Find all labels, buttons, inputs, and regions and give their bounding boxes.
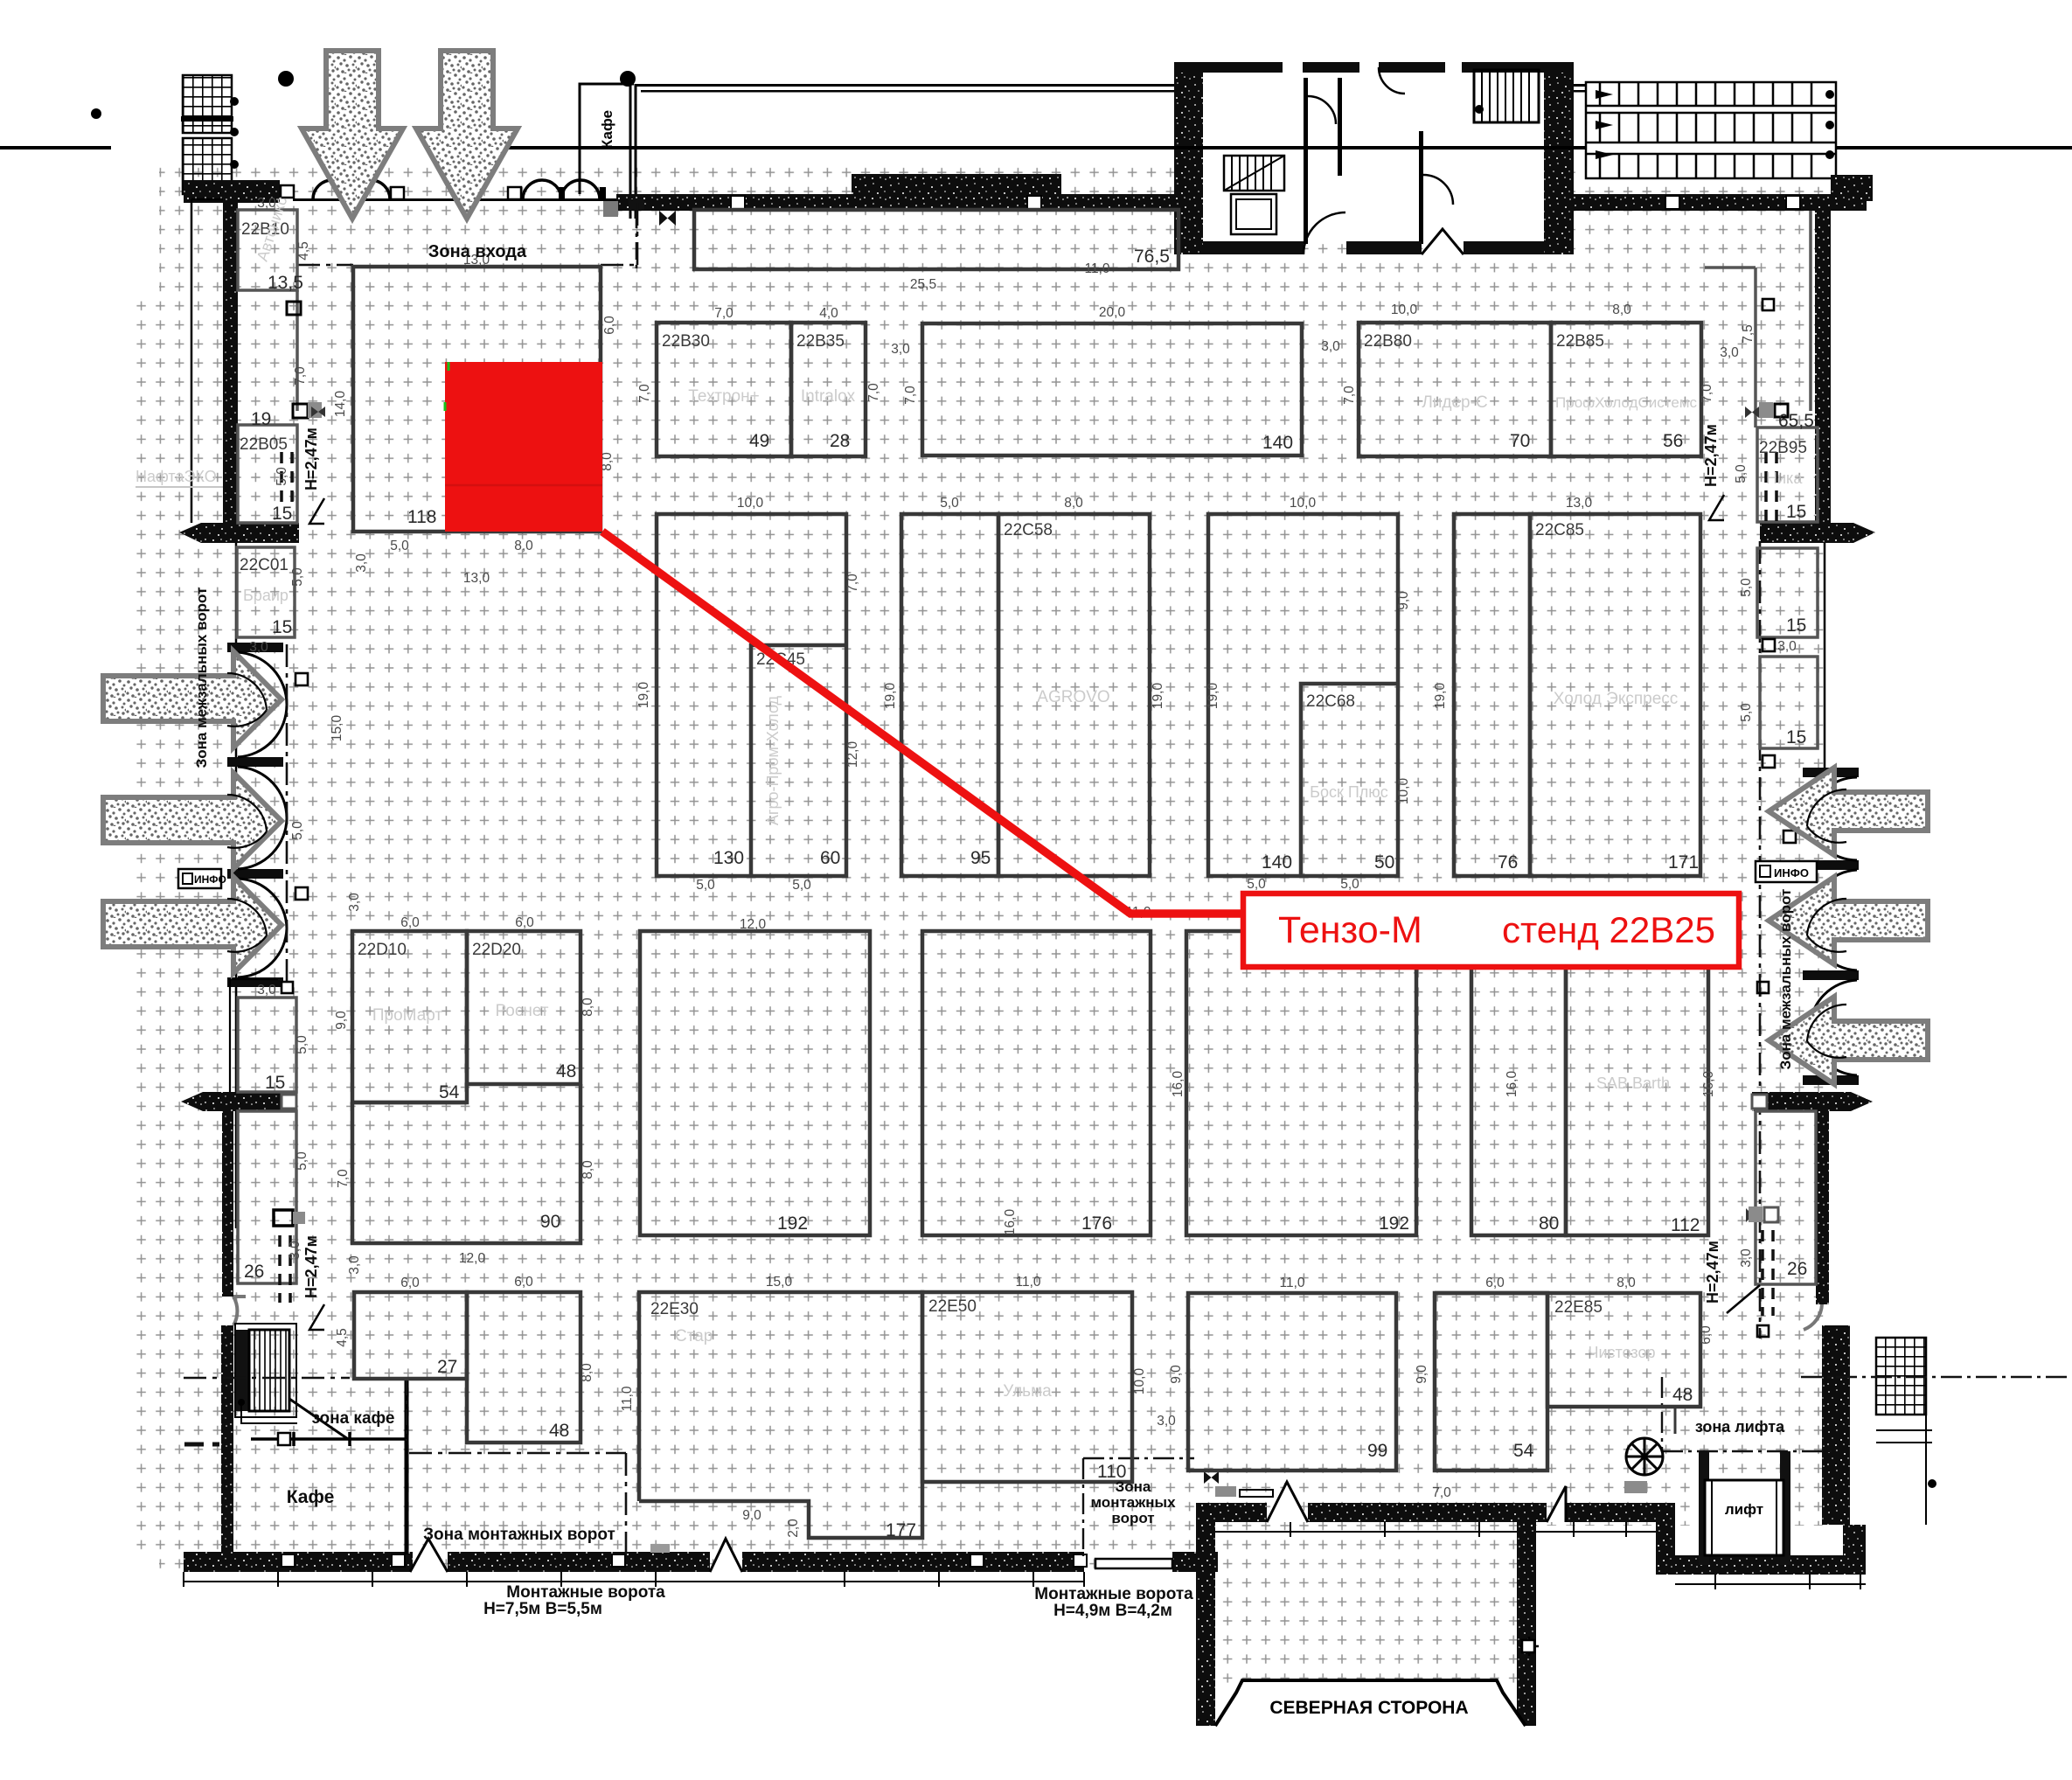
svg-text:4,5: 4,5 [335, 1328, 350, 1347]
svg-text:5,0: 5,0 [290, 567, 305, 587]
svg-text:8,0: 8,0 [1617, 1276, 1636, 1290]
svg-text:56: 56 [1663, 431, 1683, 451]
svg-text:3,0: 3,0 [1739, 1248, 1754, 1268]
svg-text:Зона межзальных ворот: Зона межзальных ворот [193, 588, 210, 768]
svg-text:8,0: 8,0 [580, 1363, 594, 1382]
svg-text:Intralox: Intralox [801, 387, 856, 406]
svg-text:9,0: 9,0 [1415, 1365, 1429, 1384]
svg-text:19: 19 [251, 409, 271, 429]
svg-text:7,0: 7,0 [637, 384, 652, 403]
svg-text:19,0: 19,0 [1433, 683, 1448, 710]
svg-text:14,0: 14,0 [333, 391, 348, 418]
svg-text:SAB Barth: SAB Barth [1596, 1074, 1670, 1092]
svg-text:Техтрон+: Техтрон+ [688, 387, 759, 406]
svg-text:зона кафе: зона кафе [312, 1409, 395, 1428]
svg-text:22B80: 22B80 [1364, 332, 1412, 351]
svg-text:130: 130 [713, 848, 744, 868]
svg-text:9,0: 9,0 [1169, 1365, 1184, 1384]
svg-text:99: 99 [1367, 1441, 1387, 1461]
svg-text:8,0: 8,0 [581, 998, 595, 1017]
svg-text:3,0: 3,0 [249, 640, 268, 655]
svg-text:Роснет: Роснет [495, 1002, 548, 1020]
svg-text:50: 50 [1374, 852, 1394, 873]
svg-text:176: 176 [1081, 1213, 1112, 1234]
svg-text:19,0: 19,0 [1206, 683, 1220, 710]
svg-text:25,5: 25,5 [910, 277, 936, 292]
svg-text:12,0: 12,0 [459, 1251, 486, 1266]
svg-text:12,0: 12,0 [845, 741, 860, 768]
svg-text:48: 48 [1672, 1385, 1693, 1405]
svg-text:22D20: 22D20 [472, 941, 521, 959]
svg-text:60: 60 [820, 848, 840, 868]
svg-text:3,0: 3,0 [257, 196, 276, 211]
svg-text:стенд 22В25: стенд 22В25 [1502, 909, 1715, 950]
svg-text:Тензо-М: Тензо-М [1278, 909, 1422, 951]
svg-text:5,0: 5,0 [1247, 877, 1266, 892]
svg-text:177: 177 [886, 1520, 916, 1540]
svg-text:5,0: 5,0 [275, 467, 289, 486]
svg-text:15: 15 [1786, 615, 1806, 636]
svg-text:3,0: 3,0 [354, 553, 369, 573]
svg-text:15: 15 [272, 504, 292, 524]
svg-text:3,0: 3,0 [891, 342, 910, 357]
svg-text:171: 171 [1668, 852, 1699, 873]
svg-text:ПроМарт: ПроМарт [372, 1006, 443, 1025]
svg-text:22C68: 22C68 [1306, 692, 1355, 711]
svg-text:6,0: 6,0 [602, 316, 617, 335]
svg-text:19,0: 19,0 [883, 683, 898, 710]
svg-text:8,0: 8,0 [1064, 496, 1083, 511]
svg-text:9,0: 9,0 [1396, 591, 1411, 610]
svg-text:Кафе: Кафе [599, 110, 615, 149]
svg-text:Н=2,47м: Н=2,47м [1702, 424, 1720, 487]
svg-text:16,0: 16,0 [1505, 1071, 1519, 1098]
svg-text:20,0: 20,0 [1099, 305, 1126, 320]
svg-text:7,5: 7,5 [1741, 324, 1756, 344]
svg-text:Зона монтажных ворот: Зона монтажных ворот [423, 1526, 615, 1544]
svg-text:Зона: Зона [1116, 1478, 1151, 1495]
svg-text:140: 140 [1262, 433, 1293, 453]
svg-text:монтажных: монтажных [1090, 1494, 1176, 1511]
svg-text:6,0: 6,0 [1699, 1325, 1714, 1345]
svg-text:ИНФО: ИНФО [194, 873, 226, 886]
svg-text:15,0: 15,0 [330, 715, 344, 742]
svg-text:Н=7,5м В=5,5м: Н=7,5м В=5,5м [483, 1600, 602, 1618]
svg-text:4,5: 4,5 [296, 241, 311, 261]
svg-text:65,5: 65,5 [1778, 411, 1814, 431]
svg-text:Браир: Браир [243, 587, 289, 604]
svg-text:49: 49 [749, 431, 769, 451]
svg-text:5,0: 5,0 [792, 878, 811, 893]
svg-text:9,0: 9,0 [334, 1011, 349, 1030]
svg-text:5,0: 5,0 [1739, 578, 1754, 597]
svg-text:10,0: 10,0 [1391, 302, 1418, 317]
svg-text:Ника: Ника [1766, 469, 1803, 487]
svg-text:5,0: 5,0 [1739, 703, 1754, 722]
svg-text:Н=2,47м: Н=2,47м [1704, 1241, 1721, 1304]
svg-text:Холод Экспресс: Холод Экспресс [1554, 690, 1679, 708]
svg-text:22B35: 22B35 [796, 332, 845, 351]
svg-text:лифт: лифт [1725, 1501, 1763, 1518]
svg-text:15: 15 [272, 617, 292, 637]
svg-text:2,0: 2,0 [786, 1519, 801, 1538]
svg-text:5,0: 5,0 [295, 1035, 309, 1054]
svg-text:7,0: 7,0 [1342, 386, 1357, 405]
svg-text:54: 54 [439, 1082, 460, 1102]
svg-text:22B30: 22B30 [662, 332, 710, 351]
svg-text:22E30: 22E30 [650, 1300, 699, 1318]
svg-text:15,0: 15,0 [766, 1275, 793, 1290]
svg-text:5,0: 5,0 [696, 878, 715, 893]
svg-text:ПрофХолодСистемс: ПрофХолодСистемс [1555, 394, 1697, 411]
svg-text:Монтажные ворота: Монтажные ворота [506, 1583, 665, 1602]
svg-text:22E50: 22E50 [928, 1297, 977, 1316]
svg-text:16,0: 16,0 [1171, 1071, 1185, 1098]
svg-text:140: 140 [1262, 852, 1292, 873]
svg-text:48: 48 [549, 1421, 569, 1441]
svg-text:10,0: 10,0 [737, 496, 764, 511]
svg-text:Лидер-С: Лидер-С [1422, 393, 1487, 412]
svg-text:192: 192 [1379, 1213, 1409, 1234]
svg-text:5,0: 5,0 [1340, 877, 1359, 892]
svg-text:Монтажные ворота: Монтажные ворота [1034, 1585, 1193, 1603]
svg-text:26: 26 [244, 1262, 264, 1282]
svg-text:Агро-Пром-Холод: Агро-Пром-Холод [764, 695, 782, 825]
svg-text:ворот: ворот [1111, 1510, 1154, 1526]
svg-text:90: 90 [540, 1212, 560, 1232]
svg-text:3,0: 3,0 [1157, 1414, 1176, 1429]
svg-text:15: 15 [1786, 502, 1806, 522]
svg-text:11,0: 11,0 [1279, 1276, 1304, 1290]
svg-text:22B05: 22B05 [240, 435, 288, 454]
svg-text:13,5: 13,5 [268, 273, 303, 293]
svg-text:5,0: 5,0 [390, 539, 409, 553]
svg-text:7,0: 7,0 [293, 366, 308, 386]
svg-text:27: 27 [437, 1357, 457, 1377]
svg-text:зона лифта: зона лифта [1695, 1418, 1785, 1436]
svg-text:10,0: 10,0 [1290, 496, 1317, 511]
svg-text:9,0: 9,0 [742, 1508, 761, 1523]
svg-text:Н=4,9м В=4,2м: Н=4,9м В=4,2м [1053, 1602, 1172, 1620]
svg-text:Зона входа: Зона входа [428, 242, 527, 261]
svg-text:22B85: 22B85 [1556, 332, 1604, 351]
svg-text:16,0: 16,0 [1701, 1071, 1716, 1098]
svg-text:11,0: 11,0 [1015, 1275, 1040, 1290]
svg-text:6,0: 6,0 [1485, 1276, 1505, 1290]
svg-text:Зона межзальных ворот: Зона межзальных ворот [1777, 889, 1794, 1070]
svg-text:AGROVO: AGROVO [1037, 688, 1109, 706]
svg-text:Боск Плюс: Боск Плюс [1310, 783, 1388, 801]
svg-text:6,0: 6,0 [400, 1276, 420, 1290]
svg-text:19,0: 19,0 [1151, 683, 1165, 710]
svg-text:Стар: Стар [675, 1327, 713, 1345]
svg-text:Н=2,47м: Н=2,47м [302, 428, 320, 490]
svg-text:6,0: 6,0 [514, 1275, 533, 1290]
svg-text:13,0: 13,0 [1566, 496, 1593, 511]
svg-text:3,0: 3,0 [347, 1255, 362, 1275]
svg-text:СЕВЕРНАЯ СТОРОНА: СЕВЕРНАЯ СТОРОНА [1269, 1698, 1468, 1718]
svg-text:54: 54 [1513, 1441, 1534, 1461]
svg-text:Чистозор: Чистозор [1589, 1344, 1656, 1361]
svg-text:22C85: 22C85 [1535, 521, 1584, 539]
svg-text:6,0: 6,0 [515, 915, 534, 930]
svg-text:13,0: 13,0 [463, 571, 490, 586]
svg-text:Кафе: Кафе [287, 1487, 335, 1507]
svg-text:5,0: 5,0 [940, 496, 959, 511]
svg-text:76: 76 [1498, 852, 1518, 873]
svg-text:8,0: 8,0 [514, 539, 533, 553]
svg-text:5,0: 5,0 [290, 821, 305, 840]
svg-text:5,0: 5,0 [295, 1151, 309, 1171]
svg-text:3,0: 3,0 [1321, 339, 1340, 354]
svg-text:7,0: 7,0 [1432, 1485, 1451, 1500]
svg-text:11,0: 11,0 [620, 1386, 635, 1411]
svg-text:3,0: 3,0 [347, 893, 362, 912]
svg-text:118: 118 [407, 507, 436, 527]
svg-text:3,0: 3,0 [288, 1241, 302, 1260]
svg-text:26: 26 [1787, 1259, 1807, 1279]
svg-text:12,0: 12,0 [740, 917, 767, 932]
svg-text:3,0: 3,0 [1777, 639, 1797, 654]
svg-text:7,0: 7,0 [714, 306, 734, 321]
svg-text:7,0: 7,0 [903, 386, 918, 405]
svg-text:4,0: 4,0 [819, 306, 838, 321]
svg-text:28: 28 [830, 431, 850, 451]
svg-text:76,5: 76,5 [1134, 247, 1170, 267]
svg-text:22B95: 22B95 [1759, 439, 1807, 457]
svg-text:95: 95 [970, 848, 991, 868]
svg-text:ИНФО: ИНФО [1774, 866, 1809, 880]
svg-text:19,0: 19,0 [636, 682, 651, 709]
svg-text:48: 48 [556, 1061, 576, 1081]
svg-text:3,0: 3,0 [257, 983, 276, 998]
svg-text:5,0: 5,0 [1734, 464, 1749, 483]
svg-text:112: 112 [1671, 1215, 1700, 1235]
svg-text:8,0: 8,0 [581, 1160, 595, 1179]
svg-text:10,0: 10,0 [1132, 1368, 1147, 1395]
svg-text:8,0: 8,0 [1612, 302, 1631, 317]
svg-text:22E85: 22E85 [1554, 1298, 1603, 1317]
svg-text:10,0: 10,0 [1396, 778, 1411, 805]
svg-text:7,0: 7,0 [845, 574, 860, 593]
svg-text:70: 70 [1510, 431, 1530, 451]
svg-text:22D10: 22D10 [358, 941, 407, 959]
svg-text:6,0: 6,0 [400, 915, 420, 930]
svg-text:22C01: 22C01 [240, 556, 289, 574]
svg-text:7,0: 7,0 [336, 1169, 351, 1188]
svg-text:Н=2,47м: Н=2,47м [302, 1235, 320, 1298]
svg-text:15: 15 [265, 1073, 285, 1093]
svg-text:80: 80 [1539, 1213, 1559, 1234]
svg-text:7,0: 7,0 [866, 383, 881, 402]
svg-text:11,0: 11,0 [1084, 261, 1109, 276]
svg-text:16,0: 16,0 [1003, 1209, 1018, 1236]
svg-text:3,0: 3,0 [1720, 345, 1739, 360]
svg-text:НафтаЭКО: НафтаЭКО [136, 468, 217, 485]
svg-text:22C58: 22C58 [1004, 521, 1053, 539]
svg-text:15: 15 [1786, 727, 1806, 747]
svg-text:7,0: 7,0 [1700, 384, 1714, 403]
svg-text:192: 192 [777, 1213, 808, 1234]
svg-text:Ульма: Ульма [1003, 1382, 1052, 1401]
